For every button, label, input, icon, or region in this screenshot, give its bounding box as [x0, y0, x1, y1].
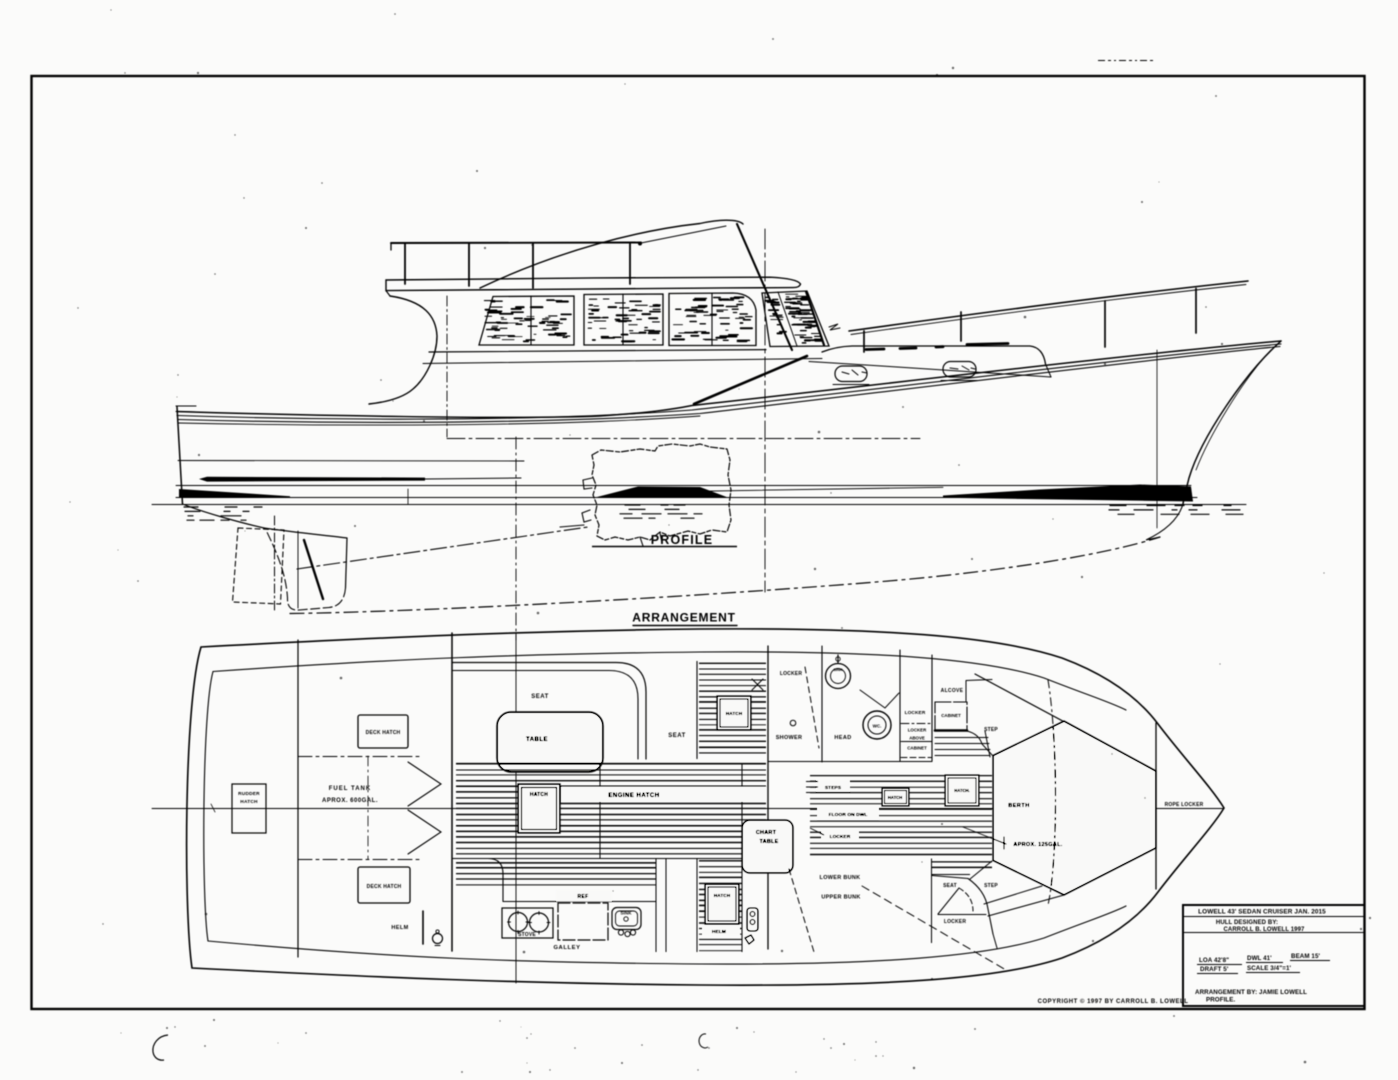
svg-text:HATCH: HATCH — [726, 711, 743, 716]
svg-text:HEAD: HEAD — [834, 735, 851, 741]
svg-text:SCALE 3/4"=1': SCALE 3/4"=1' — [1247, 965, 1291, 972]
svg-text:FUEL TANK: FUEL TANK — [329, 786, 371, 792]
svg-text:LOCKER: LOCKER — [780, 671, 803, 677]
svg-text:HELM: HELM — [712, 929, 726, 935]
svg-text:HATCH: HATCH — [714, 893, 731, 898]
svg-text:STEPS: STEPS — [825, 785, 842, 791]
svg-text:RUDDER: RUDDER — [238, 791, 260, 797]
svg-text:BERTH: BERTH — [1008, 803, 1029, 809]
svg-text:CABINET: CABINET — [907, 746, 927, 751]
svg-text:HATCH: HATCH — [240, 799, 258, 805]
svg-text:CABINET: CABINET — [941, 713, 961, 718]
svg-text:ARRANGEMENT: ARRANGEMENT — [632, 611, 735, 625]
svg-text:HATCH.: HATCH. — [954, 788, 970, 793]
svg-text:ALCOVE: ALCOVE — [941, 688, 964, 694]
svg-text:SINK: SINK — [833, 668, 842, 672]
svg-text:STEP: STEP — [984, 727, 998, 733]
svg-text:ROPE LOCKER: ROPE LOCKER — [1165, 802, 1204, 808]
svg-text:LOA 42'8": LOA 42'8" — [1199, 957, 1229, 964]
svg-text:PROFILE: PROFILE — [651, 533, 714, 547]
svg-text:SINK: SINK — [620, 911, 632, 916]
svg-text:UPPER BUNK: UPPER BUNK — [821, 895, 860, 901]
svg-text:ABOVE: ABOVE — [909, 736, 925, 741]
svg-text:SEAT: SEAT — [668, 733, 686, 739]
svg-text:TABLE: TABLE — [760, 839, 779, 845]
svg-text:DRAFT 5': DRAFT 5' — [1200, 966, 1229, 973]
svg-text:TABLE: TABLE — [526, 737, 548, 743]
svg-text:APROX. 125GAL.: APROX. 125GAL. — [1013, 842, 1062, 848]
svg-text:COPYRIGHT © 1997 BY CARROLL B.: COPYRIGHT © 1997 BY CARROLL B. LOWELL — [1038, 998, 1189, 1005]
svg-text:CHART: CHART — [756, 830, 777, 836]
svg-text:HULL DESIGNED BY:: HULL DESIGNED BY: — [1216, 920, 1278, 926]
svg-text:ENGINE HATCH: ENGINE HATCH — [608, 793, 659, 799]
svg-text:FLOOR ON DWL: FLOOR ON DWL — [829, 812, 868, 818]
svg-text:HATCH: HATCH — [530, 792, 548, 798]
svg-text:PROFILE.: PROFILE. — [1206, 997, 1236, 1004]
svg-text:LOCKER: LOCKER — [830, 834, 851, 840]
svg-text:CARROLL B. LOWELL 1997: CARROLL B. LOWELL 1997 — [1224, 927, 1306, 933]
svg-text:SHOWER: SHOWER — [776, 735, 803, 741]
svg-text:DECK HATCH: DECK HATCH — [367, 884, 402, 890]
svg-text:SEAT: SEAT — [531, 694, 549, 700]
svg-text:DWL 41': DWL 41' — [1247, 955, 1272, 962]
svg-text:LOCKER: LOCKER — [944, 919, 967, 925]
svg-text:DECK HATCH: DECK HATCH — [366, 730, 401, 736]
svg-text:SEAT: SEAT — [943, 883, 957, 889]
svg-text:LOCKER: LOCKER — [908, 728, 927, 733]
svg-text:REF: REF — [578, 894, 589, 900]
svg-text:GALLEY: GALLEY — [553, 945, 580, 951]
svg-text:LOWELL 43' SEDAN CRUISER JA: LOWELL 43' SEDAN CRUISER JAN. 2015 — [1198, 909, 1326, 916]
svg-text:HATCH: HATCH — [888, 795, 902, 800]
svg-text:STOVE: STOVE — [518, 932, 536, 938]
svg-text:STEP: STEP — [984, 883, 998, 889]
svg-text:ARRANGEMENT BY: JAMIE LOWELL: ARRANGEMENT BY: JAMIE LOWELL — [1195, 989, 1307, 996]
svg-text:LOCKER: LOCKER — [905, 710, 926, 716]
svg-text:LOWER BUNK: LOWER BUNK — [820, 875, 861, 881]
svg-text:BEAM 15': BEAM 15' — [1291, 953, 1321, 960]
svg-text:WC.: WC. — [873, 724, 882, 729]
svg-text:APROX. 600GAL.: APROX. 600GAL. — [322, 798, 378, 804]
svg-text:HELM: HELM — [391, 925, 408, 931]
